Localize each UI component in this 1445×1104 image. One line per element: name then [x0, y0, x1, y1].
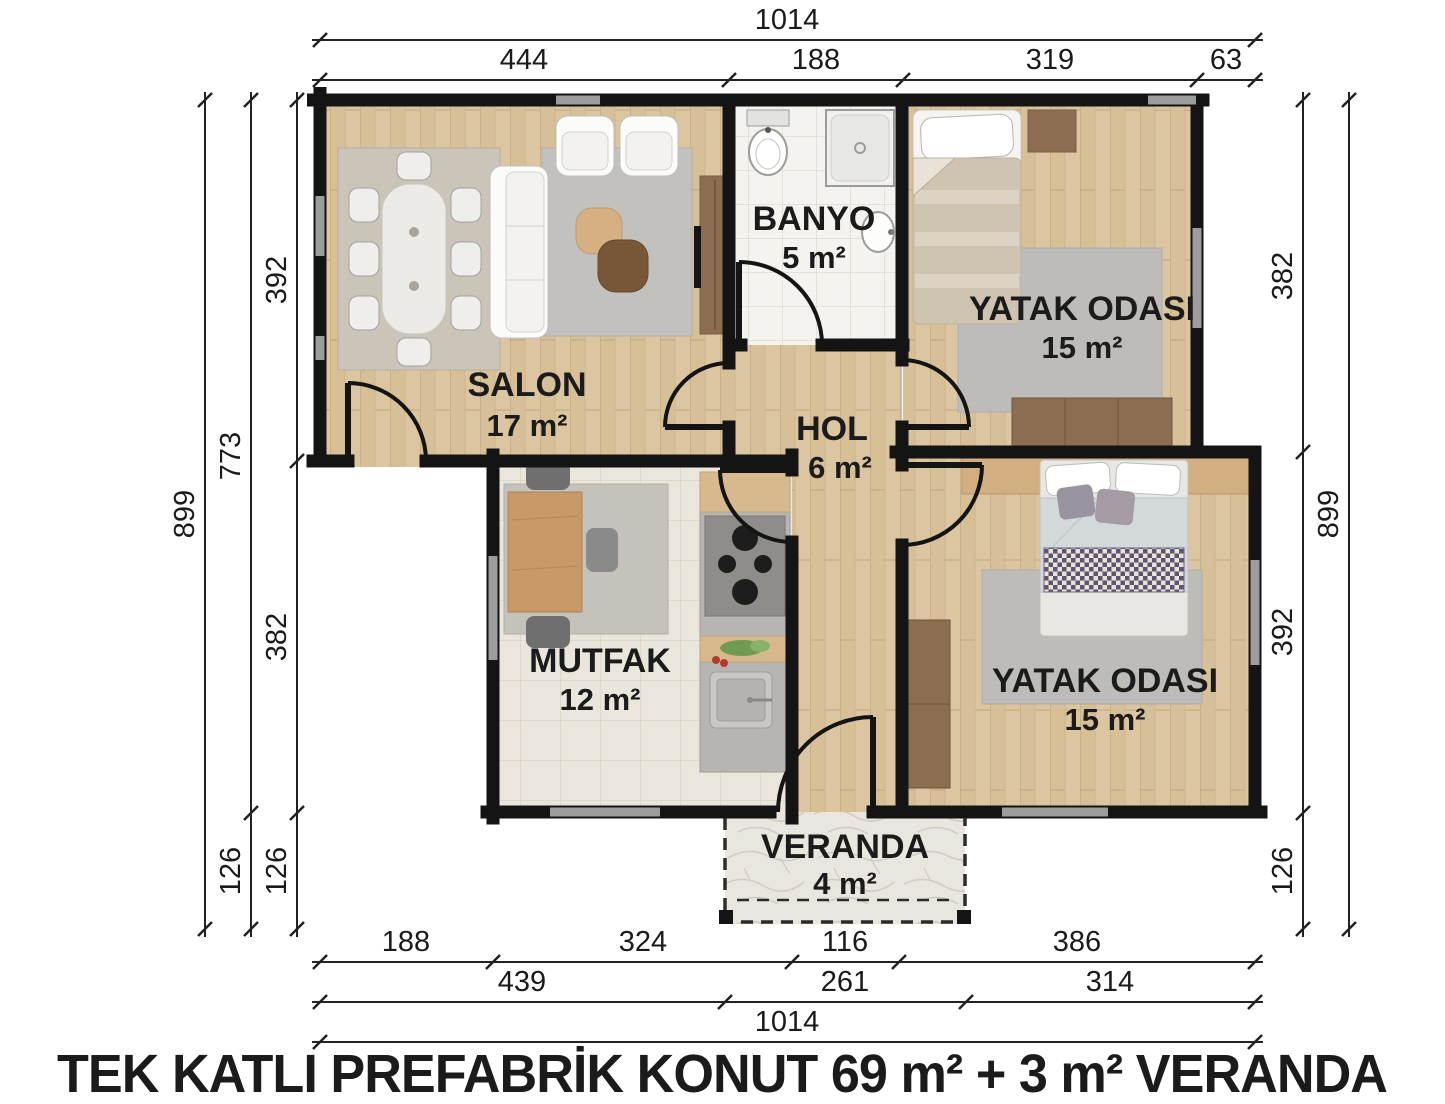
room-area-yatak1: 15 m² — [1042, 330, 1123, 365]
armchair — [620, 116, 678, 176]
dining-chair — [397, 152, 431, 180]
window — [489, 556, 498, 660]
veranda-post — [719, 910, 733, 924]
dim-left-inner2: 382 — [261, 613, 293, 661]
room-label-yatak2: YATAK ODASI — [992, 662, 1218, 700]
bed-double — [1040, 460, 1188, 636]
room-label-banyo: BANYO — [753, 200, 876, 238]
dim-top-seg4: 63 — [1210, 44, 1242, 76]
dining-chair — [349, 242, 379, 276]
kitchen-sink — [710, 672, 772, 728]
dim-bottom-r1s3: 116 — [822, 926, 868, 958]
dim-right-overall: 899 — [1313, 490, 1345, 538]
dim-bottom-r2s1: 439 — [498, 966, 546, 998]
dim-left-mid1: 773 — [215, 432, 247, 480]
dim-left-mid2: 126 — [215, 847, 247, 895]
cutting-board — [700, 636, 790, 667]
dim-right-inner2: 392 — [1267, 608, 1299, 656]
dim-top-seg2: 188 — [792, 44, 840, 76]
coffee-table — [598, 240, 648, 292]
room-area-mutfak: 12 m² — [560, 682, 641, 717]
window — [556, 96, 600, 105]
floor-plan: SALON 17 m² BANYO 5 m² YATAK ODASI 15 m²… — [0, 0, 1445, 1104]
dim-left-inner1: 392 — [261, 256, 293, 304]
shower — [826, 110, 894, 186]
blanket — [1044, 548, 1184, 592]
room-label-mutfak: MUTFAK — [529, 642, 671, 680]
dining-chair — [349, 296, 379, 330]
window — [1148, 96, 1196, 105]
floor-plan-page: SALON 17 m² BANYO 5 m² YATAK ODASI 15 m²… — [0, 0, 1445, 1104]
table-decor — [409, 281, 419, 291]
dining-chair — [451, 242, 481, 276]
pillow — [1115, 462, 1180, 495]
window — [550, 808, 660, 817]
kitchen-table — [508, 492, 582, 612]
dim-bottom-r1s1: 188 — [382, 926, 430, 958]
room-label-salon: SALON — [468, 366, 587, 404]
dining-chair — [451, 188, 481, 222]
kitchen-chair — [586, 528, 618, 572]
room-label-veranda: VERANDA — [761, 828, 929, 866]
dim-bottom-r2s3: 314 — [1086, 966, 1134, 998]
room-area-salon: 17 m² — [487, 408, 568, 443]
sofa — [490, 166, 548, 338]
dim-right-inner1: 382 — [1267, 252, 1299, 300]
room-area-hol: 6 m² — [808, 450, 872, 485]
dim-right-inner3: 126 — [1267, 847, 1299, 895]
dim-left-inner3: 126 — [261, 847, 293, 895]
table-decor — [409, 227, 419, 237]
room-area-veranda: 4 m² — [813, 866, 877, 901]
dim-top-seg1: 444 — [500, 44, 548, 76]
dim-bottom-r2s2: 261 — [821, 966, 869, 998]
tv — [694, 226, 701, 288]
window — [316, 196, 325, 256]
armchair — [556, 116, 614, 176]
veranda-post — [957, 910, 971, 924]
dim-top-overall: 1014 — [755, 4, 820, 36]
plan-title: TEK KATLI PREFABRİK KONUT 69 m² + 3 m² V… — [57, 1044, 1387, 1104]
kitchen-counter — [700, 472, 790, 772]
room-label-hol: HOL — [796, 410, 868, 448]
dining-table — [382, 184, 446, 334]
dim-left-overall: 899 — [169, 490, 201, 538]
dining-chair — [451, 296, 481, 330]
stove — [705, 516, 785, 616]
dining-chair — [397, 338, 431, 366]
wardrobe-bedroom2 — [906, 620, 950, 788]
window — [316, 336, 325, 360]
pillow — [920, 114, 1014, 161]
wardrobe-bedroom1 — [1012, 398, 1172, 448]
dining-chair — [349, 188, 379, 222]
cushion — [1056, 484, 1096, 521]
dim-bottom-r1s2: 324 — [619, 926, 667, 958]
dim-top-seg3: 319 — [1026, 44, 1074, 76]
nightstand — [1028, 110, 1076, 152]
window — [1251, 560, 1260, 665]
room-area-yatak2: 15 m² — [1065, 702, 1146, 737]
dim-bottom-overall: 1014 — [755, 1006, 820, 1038]
toilet — [747, 110, 789, 175]
room-label-yatak1: YATAK ODASI — [969, 290, 1195, 328]
hall-floor-corridor — [792, 455, 902, 812]
window — [1002, 808, 1108, 817]
dim-bottom-r1s4: 386 — [1053, 926, 1101, 958]
cushion — [1094, 488, 1135, 526]
room-area-banyo: 5 m² — [782, 240, 846, 275]
